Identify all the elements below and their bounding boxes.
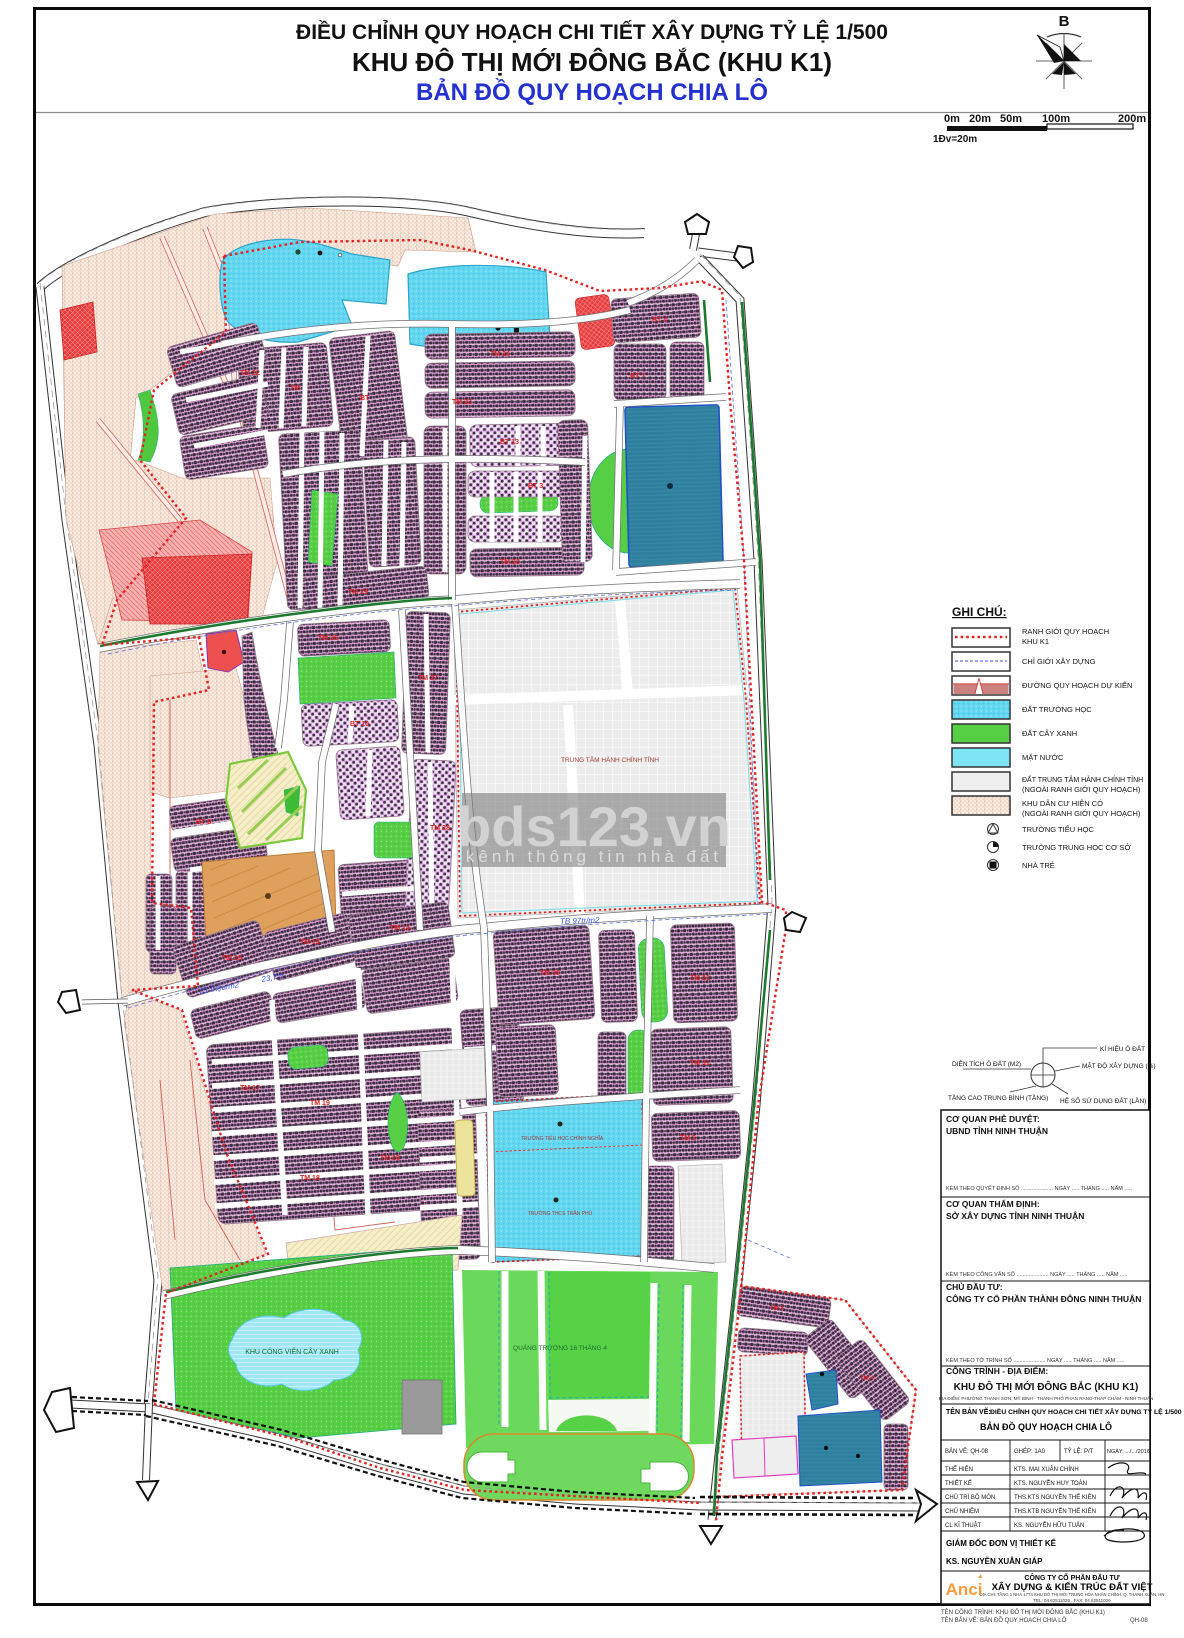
svg-text:TM 27: TM 27 <box>418 675 438 682</box>
svg-text:TM 18: TM 18 <box>300 1175 320 1182</box>
svg-text:TRƯỜNG TIỂU HỌC CHÍNH NGHĨA: TRƯỜNG TIỂU HỌC CHÍNH NGHĨA <box>521 1135 604 1142</box>
svg-text:ĐẤT TRƯỜNG HỌC: ĐẤT TRƯỜNG HỌC <box>1022 704 1092 714</box>
svg-text:TM 31: TM 31 <box>690 1060 710 1067</box>
svg-text:TB 97tr/m2: TB 97tr/m2 <box>560 916 600 926</box>
svg-text:CHỈ GIỚI XÂY DỰNG: CHỈ GIỚI XÂY DỰNG <box>1022 657 1096 666</box>
svg-text:BT 8: BT 8 <box>196 819 211 826</box>
svg-text:KHU ĐÔ THỊ MỚI ĐÔNG BẮC (KHU K: KHU ĐÔ THỊ MỚI ĐÔNG BẮC (KHU K1) <box>352 47 832 77</box>
svg-text:KHU K1: KHU K1 <box>1022 637 1049 646</box>
svg-text:BT 13: BT 13 <box>500 439 519 446</box>
svg-text:100m: 100m <box>1042 113 1070 125</box>
svg-text:TÊN CÔNG TRÌNH: KHU ĐÔ THỊ MỚI: TÊN CÔNG TRÌNH: KHU ĐÔ THỊ MỚI ĐÔNG BẮC … <box>941 1608 1105 1616</box>
svg-text:20m: 20m <box>969 113 991 125</box>
svg-text:TM 30: TM 30 <box>540 970 560 977</box>
svg-text:TM 3: TM 3 <box>770 1306 784 1312</box>
svg-text:TM 15: TM 15 <box>222 955 242 962</box>
svg-text:TM 26: TM 26 <box>318 635 338 642</box>
svg-text:THỂ HIỆN: THỂ HIỆN <box>945 1465 973 1473</box>
svg-text:TEL: 04.62511026 FAX: 04.625: TEL: 04.62511026 FAX: 04.62511026 <box>1033 1598 1111 1603</box>
svg-text:UBND TỈNH NINH THUẬN: UBND TỈNH NINH THUẬN <box>946 1125 1048 1136</box>
svg-text:THIẾT KẾ: THIẾT KẾ <box>945 1480 972 1487</box>
svg-text:KÈM THEO TỜ TRÌNH SỐ .........: KÈM THEO TỜ TRÌNH SỐ ...................… <box>946 1357 1125 1364</box>
svg-text:CƠ QUAN PHÊ DUYỆT:: CƠ QUAN PHÊ DUYỆT: <box>946 1113 1040 1124</box>
svg-text:KÈM THEO QUYẾT ĐỊNH SỐ .......: KÈM THEO QUYẾT ĐỊNH SỐ .................… <box>946 1185 1132 1192</box>
svg-text:TM 21: TM 21 <box>690 975 710 982</box>
svg-text:SỞ XÂY DỰNG TỈNH NINH THUẬN: SỞ XÂY DỰNG TỈNH NINH THUẬN <box>946 1210 1084 1221</box>
svg-text:KTS. MAI XUÂN CHÍNH: KTS. MAI XUÂN CHÍNH <box>1014 1466 1079 1473</box>
svg-text:CÔNG TRÌNH - ĐỊA ĐIỂM:: CÔNG TRÌNH - ĐỊA ĐIỂM: <box>946 1365 1048 1376</box>
svg-text:MẶT NƯỚC: MẶT NƯỚC <box>1022 753 1064 762</box>
svg-text:RANH GIỚI QUY HOẠCH: RANH GIỚI QUY HOẠCH <box>1022 627 1109 636</box>
svg-text:TM 29: TM 29 <box>348 589 368 596</box>
svg-text:1Đv=20m: 1Đv=20m <box>933 134 977 145</box>
svg-text:KHU ĐÔ THỊ MỚI ĐÔNG BẮC (KHU K: KHU ĐÔ THỊ MỚI ĐÔNG BẮC (KHU K1) <box>954 1380 1139 1393</box>
svg-text:(NGOÀI RANH GIỚI QUY HOẠCH): (NGOÀI RANH GIỚI QUY HOẠCH) <box>1022 809 1141 818</box>
svg-text:KHU DÂN CƯ HIỆN CÓ: KHU DÂN CƯ HIỆN CÓ <box>1022 799 1103 808</box>
svg-text:TM 23: TM 23 <box>452 399 472 406</box>
svg-text:B: B <box>1059 13 1070 30</box>
svg-text:TM 19: TM 19 <box>310 1100 330 1107</box>
svg-text:ĐỊA ĐIỂM: PHƯỜNG THANH SƠN, MỸ: ĐỊA ĐIỂM: PHƯỜNG THANH SƠN, MỸ BÌNH - TH… <box>939 1395 1154 1401</box>
svg-text:kênh thông tin nhà đất: kênh thông tin nhà đất <box>466 847 722 866</box>
svg-text:CHỦ TRÌ BỘ MÔN: CHỦ TRÌ BỘ MÔN <box>945 1494 995 1501</box>
svg-text:THS.KTS NGUYỄN THẾ KIÊN: THS.KTS NGUYỄN THẾ KIÊN <box>1014 1493 1096 1501</box>
svg-text:CHỦ NHIỆM: CHỦ NHIỆM <box>945 1507 979 1515</box>
svg-text:TM 17: TM 17 <box>240 1085 260 1092</box>
svg-text:QUẢNG TRƯỜNG 16 THÁNG 4: QUẢNG TRƯỜNG 16 THÁNG 4 <box>513 1343 607 1352</box>
svg-text:QH-08: QH-08 <box>1130 1618 1148 1624</box>
svg-text:GHÉP: 1A0: GHÉP: 1A0 <box>1014 1448 1046 1455</box>
svg-text:CÔNG TY CỔ PHẦN THÀNH ĐÔNG NIN: CÔNG TY CỔ PHẦN THÀNH ĐÔNG NINH THUẬN <box>946 1293 1141 1304</box>
svg-text:THS.KTB NGUYỄN THẾ KIÊN: THS.KTB NGUYỄN THẾ KIÊN <box>1014 1507 1096 1515</box>
svg-text:TRƯỜNG TRUNG HỌC CƠ SỞ: TRƯỜNG TRUNG HỌC CƠ SỞ <box>1022 843 1131 852</box>
svg-text:BT 7: BT 7 <box>630 373 645 380</box>
svg-text:50m: 50m <box>1000 113 1022 125</box>
svg-text:BT 3: BT 3 <box>528 483 543 490</box>
svg-text:KTS. NGUYỄN HUY TOÀN: KTS. NGUYỄN HUY TOÀN <box>1014 1480 1087 1487</box>
svg-text:BẢN ĐỒ QUY HOẠCH CHIA LÔ: BẢN ĐỒ QUY HOẠCH CHIA LÔ <box>416 77 768 106</box>
svg-text:TM 14: TM 14 <box>390 925 410 932</box>
svg-text:KS. NGUYỄN XUÂN GIÁP: KS. NGUYỄN XUÂN GIÁP <box>946 1557 1043 1566</box>
svg-text:TM 22: TM 22 <box>240 370 260 377</box>
svg-text:TM 28: TM 28 <box>430 825 450 832</box>
svg-text:TÊN BẢN VẼ:: TÊN BẢN VẼ: <box>946 1407 991 1416</box>
svg-text:0m: 0m <box>944 113 960 125</box>
svg-text:TM 33: TM 33 <box>500 559 520 566</box>
svg-text:CƠ QUAN THẨM ĐỊNH:: CƠ QUAN THẨM ĐỊNH: <box>946 1198 1040 1209</box>
svg-text:BT 4: BT 4 <box>652 317 667 324</box>
svg-text:BT 10: BT 10 <box>350 721 369 728</box>
svg-text:TM: TM <box>290 385 300 392</box>
svg-text:MẬT ĐỘ XÂY DỰNG (%): MẬT ĐỘ XÂY DỰNG (%) <box>1082 1061 1156 1070</box>
svg-text:TRUNG TÂM HÀNH CHÍNH TỈNH: TRUNG TÂM HÀNH CHÍNH TỈNH <box>561 755 659 764</box>
svg-text:200m: 200m <box>1118 113 1146 125</box>
svg-text:TÊN BẢN VẼ: BẢN ĐỒ QUY HOẠCH C: TÊN BẢN VẼ: BẢN ĐỒ QUY HOẠCH CHIA LÔ <box>941 1616 1067 1624</box>
svg-text:ĐẤT CÂY XANH: ĐẤT CÂY XANH <box>1022 728 1077 738</box>
svg-text:TRƯỜNG TIỂU HỌC: TRƯỜNG TIỂU HỌC <box>1022 825 1094 834</box>
svg-text:(NGOÀI RANH GIỚI QUY HOẠCH): (NGOÀI RANH GIỚI QUY HOẠCH) <box>1022 785 1141 794</box>
svg-text:TM 24: TM 24 <box>490 351 510 358</box>
svg-text:GIÁM ĐỐC ĐƠN VỊ THIẾT KẾ: GIÁM ĐỐC ĐƠN VỊ THIẾT KẾ <box>946 1538 1057 1548</box>
svg-text:KÈM THEO CÔNG VĂN SỐ .........: KÈM THEO CÔNG VĂN SỐ ...................… <box>946 1271 1128 1278</box>
svg-text:TM 2: TM 2 <box>680 1135 696 1142</box>
svg-text:CL KĨ THUẬT: CL KĨ THUẬT <box>945 1522 982 1529</box>
svg-text:BẢN VẼ: QH-08: BẢN VẼ: QH-08 <box>945 1448 989 1455</box>
svg-text:ĐIỀU CHỈNH QUY HOẠCH CHI TIẾT: ĐIỀU CHỈNH QUY HOẠCH CHI TIẾT XÂY DỰNG T… <box>296 20 888 44</box>
svg-text:TM 20: TM 20 <box>380 1155 400 1162</box>
svg-text:GHI CHÚ:: GHI CHÚ: <box>952 604 1007 619</box>
svg-text:ĐỊA CHỈ: TẦNG 1 NHÀ 17T4 KHU Đ: ĐỊA CHỈ: TẦNG 1 NHÀ 17T4 KHU ĐÔ THỊ MỚI … <box>980 1592 1165 1597</box>
svg-text:TM 16: TM 16 <box>300 939 320 946</box>
svg-text:KHU CÔNG VIÊN CÂY XANH: KHU CÔNG VIÊN CÂY XANH <box>245 1347 339 1356</box>
svg-text:TỶ LỆ: P/T: TỶ LỆ: P/T <box>1064 1447 1094 1455</box>
svg-text:Anci: Anci <box>946 1580 983 1599</box>
svg-text:BT: BT <box>360 395 370 402</box>
svg-text:NHÀ TRẺ: NHÀ TRẺ <box>1022 861 1055 870</box>
svg-text:ĐƯỜNG QUY HOẠCH DỰ KIẾN: ĐƯỜNG QUY HOẠCH DỰ KIẾN <box>1022 680 1132 690</box>
svg-text:TRƯỜNG THCS TRẦN PHÚ: TRƯỜNG THCS TRẦN PHÚ <box>528 1210 593 1217</box>
svg-text:KS. NGUYỄN HỮU TUẤN: KS. NGUYỄN HỮU TUẤN <box>1014 1522 1084 1529</box>
svg-text:BẢN ĐỒ QUY HOẠCH CHIA LÔ: BẢN ĐỒ QUY HOẠCH CHIA LÔ <box>980 1421 1112 1432</box>
svg-text:TM 4: TM 4 <box>860 1376 874 1382</box>
svg-text:NGÀY: .../.../2016: NGÀY: .../.../2016 <box>1107 1448 1150 1455</box>
svg-text:CHỦ ĐẦU TƯ:: CHỦ ĐẦU TƯ: <box>946 1281 1003 1292</box>
